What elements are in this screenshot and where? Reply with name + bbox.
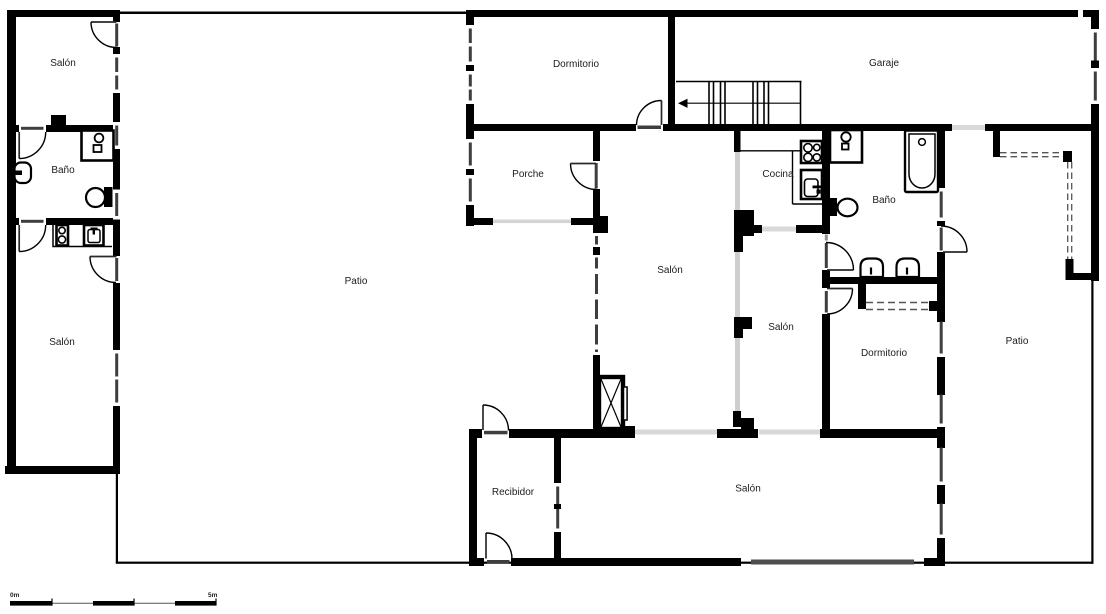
svg-text:Porche: Porche <box>512 169 544 180</box>
svg-text:Baño: Baño <box>51 165 75 176</box>
svg-text:Baño: Baño <box>872 195 896 206</box>
svg-text:Dormitorio: Dormitorio <box>861 348 908 359</box>
svg-text:5m: 5m <box>208 592 218 599</box>
svg-text:Garaje: Garaje <box>869 58 899 69</box>
svg-text:Patio: Patio <box>345 276 368 287</box>
svg-text:Recibidor: Recibidor <box>492 487 535 498</box>
svg-text:Salón: Salón <box>768 322 794 333</box>
svg-text:Salón: Salón <box>657 265 683 276</box>
svg-text:Patio: Patio <box>1006 336 1029 347</box>
svg-text:0m: 0m <box>10 592 20 599</box>
svg-text:Salón: Salón <box>49 337 75 348</box>
svg-text:Salón: Salón <box>735 484 761 495</box>
svg-text:Cocina: Cocina <box>762 169 794 180</box>
svg-text:Salón: Salón <box>50 58 76 69</box>
svg-text:Dormitorio: Dormitorio <box>553 59 600 70</box>
